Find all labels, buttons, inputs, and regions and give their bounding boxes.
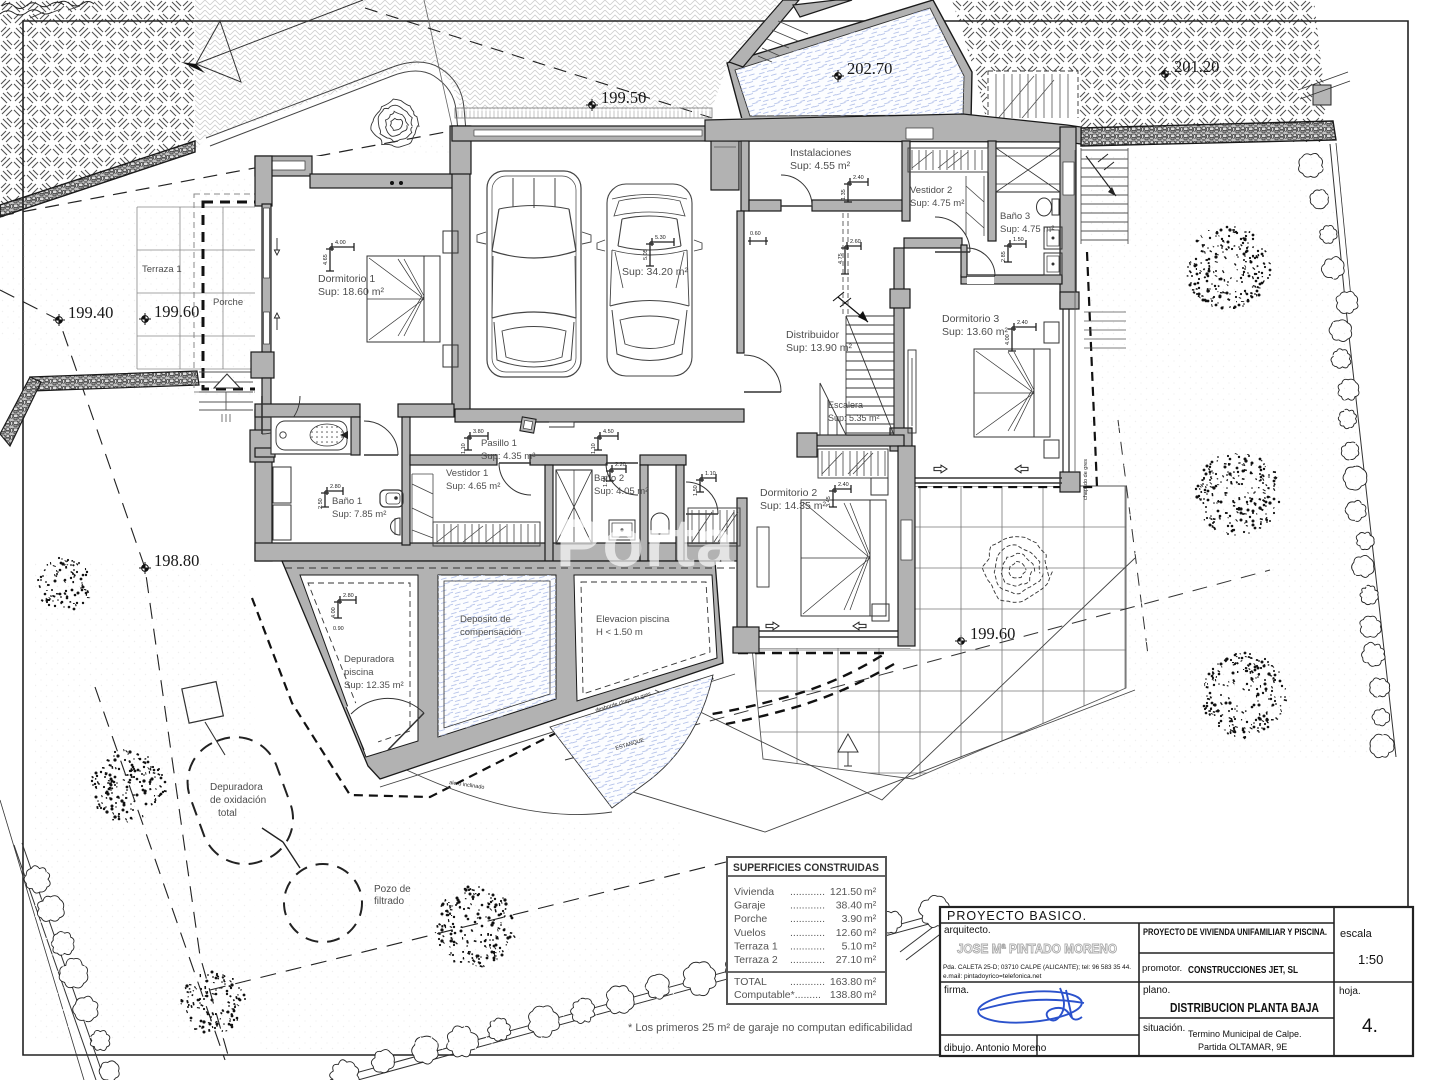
svg-text:202.70: 202.70	[847, 59, 892, 78]
svg-text:............: ............	[790, 886, 825, 898]
svg-text:Depuradora: Depuradora	[210, 782, 263, 793]
svg-text:5.10: 5.10	[842, 940, 863, 952]
svg-text:............: ............	[790, 940, 825, 952]
svg-text:Baño 3: Baño 3	[1000, 211, 1030, 222]
svg-text:38.40: 38.40	[836, 900, 862, 912]
svg-text:Sup: 4.55 m²: Sup: 4.55 m²	[790, 160, 851, 172]
svg-text:4.: 4.	[1362, 1016, 1378, 1037]
svg-text:m²: m²	[864, 976, 877, 988]
svg-text:piscina: piscina	[344, 667, 374, 678]
svg-text:Porche: Porche	[734, 913, 767, 925]
svg-text:163.80: 163.80	[830, 976, 862, 988]
svg-text:4.50: 4.50	[603, 429, 614, 435]
svg-text:1.10: 1.10	[591, 443, 597, 454]
svg-text:Sup: 13.90 m²: Sup: 13.90 m²	[786, 342, 852, 354]
svg-text:total: total	[218, 808, 237, 819]
svg-text:2.40: 2.40	[838, 482, 849, 488]
svg-text:m²: m²	[864, 954, 877, 966]
svg-text:............: ............	[790, 927, 825, 939]
svg-text:1.50: 1.50	[603, 476, 609, 487]
svg-text:Pasillo 1: Pasillo 1	[481, 438, 517, 449]
svg-text:5.30: 5.30	[655, 235, 666, 241]
svg-text:1:50: 1:50	[1358, 952, 1383, 967]
svg-text:3.90: 3.90	[842, 913, 863, 925]
svg-text:Sup: 5.35 m²: Sup: 5.35 m²	[828, 413, 880, 423]
svg-text:Deposito de: Deposito de	[460, 614, 511, 625]
svg-text:m²: m²	[864, 886, 877, 898]
svg-text:4.00: 4.00	[335, 240, 346, 246]
svg-text:4.00: 4.00	[331, 607, 337, 618]
svg-text:1.35: 1.35	[841, 189, 847, 200]
svg-text:Sup: 18.60 m²: Sup: 18.60 m²	[318, 286, 384, 298]
svg-text:............: ............	[790, 913, 825, 925]
svg-text:Depuradora: Depuradora	[344, 654, 395, 665]
svg-text:3.80: 3.80	[473, 429, 484, 435]
svg-text:filtrado: filtrado	[374, 896, 404, 907]
svg-text:Baño 1: Baño 1	[332, 496, 362, 507]
svg-text:199.60: 199.60	[154, 302, 199, 321]
svg-text:Vestidor 2: Vestidor 2	[910, 185, 952, 196]
svg-text:situación.: situación.	[1143, 1023, 1185, 1034]
svg-text:1.50: 1.50	[693, 485, 699, 496]
svg-text:Sup: 4.75 m²: Sup: 4.75 m²	[910, 198, 964, 209]
svg-text:Porta: Porta	[556, 505, 735, 581]
svg-text:199.40: 199.40	[68, 303, 113, 322]
svg-text:Vestidor 1: Vestidor 1	[446, 468, 488, 479]
svg-text:compensación: compensación	[460, 627, 521, 638]
svg-text:hoja.: hoja.	[1339, 986, 1361, 997]
svg-text:m²: m²	[864, 927, 877, 939]
svg-text:DISTRIBUCION PLANTA BAJA: DISTRIBUCION PLANTA BAJA	[1170, 1001, 1319, 1015]
svg-text:CONSTRUCCIONES JET, SL: CONSTRUCCIONES JET, SL	[1188, 965, 1298, 976]
svg-text:27.10: 27.10	[836, 954, 862, 966]
svg-text:Sup: 34.20 m²: Sup: 34.20 m²	[622, 266, 688, 278]
svg-text:Sup: 4.75 m²: Sup: 4.75 m²	[1000, 224, 1054, 235]
svg-text:1.10: 1.10	[705, 471, 716, 477]
svg-text:Baño 2: Baño 2	[594, 473, 624, 484]
svg-text:1.10: 1.10	[461, 443, 467, 454]
svg-text:e.mail: pintadoyrico=telefoni: e.mail: pintadoyrico=telefonica.net	[943, 973, 1042, 980]
svg-text:chapado de gres: chapado de gres	[1083, 459, 1089, 500]
svg-text:Partida OLTAMAR, 9E: Partida OLTAMAR, 9E	[1198, 1042, 1287, 1052]
svg-text:0.90: 0.90	[333, 626, 344, 632]
svg-text:2.60: 2.60	[850, 239, 861, 245]
svg-text:de oxidación: de oxidación	[210, 795, 266, 806]
svg-text:m²: m²	[864, 940, 877, 952]
svg-text:Escalera: Escalera	[828, 400, 863, 410]
svg-text:1.50: 1.50	[1013, 237, 1024, 243]
svg-text:JOSE Mª PINTADO MORENO: JOSE Mª PINTADO MORENO	[957, 942, 1117, 956]
svg-text:m²: m²	[864, 913, 877, 925]
svg-text:4.65: 4.65	[323, 254, 329, 265]
svg-text:Dormitorio 1: Dormitorio 1	[318, 273, 375, 285]
svg-text:Sup: 4.35 m²: Sup: 4.35 m²	[481, 451, 535, 462]
svg-text:2.80: 2.80	[343, 593, 354, 599]
svg-text:199.50: 199.50	[601, 88, 646, 107]
svg-text:plano.: plano.	[1143, 985, 1170, 996]
svg-text:............: ............	[790, 976, 825, 988]
svg-text:198.80: 198.80	[154, 551, 199, 570]
svg-text:138.80: 138.80	[830, 989, 862, 1001]
svg-text:* Los primeros 25 m² de garaje: * Los primeros 25 m² de garaje no comput…	[628, 1022, 912, 1034]
svg-text:2.40: 2.40	[853, 175, 864, 181]
svg-text:2.50: 2.50	[318, 498, 324, 509]
svg-text:PROYECTO BASICO.: PROYECTO BASICO.	[947, 909, 1087, 923]
svg-text:H < 1.50 m: H < 1.50 m	[596, 627, 643, 638]
svg-text:Terraza 1: Terraza 1	[142, 264, 182, 275]
svg-text:Sup: 13.60 m²: Sup: 13.60 m²	[942, 326, 1008, 338]
svg-text:Pozo de: Pozo de	[374, 884, 411, 895]
svg-text:Sup: 7.85 m²: Sup: 7.85 m²	[332, 509, 386, 520]
svg-text:12.60: 12.60	[836, 927, 862, 939]
svg-text:Terraza 2: Terraza 2	[734, 954, 778, 966]
svg-text:PROYECTO DE VIVIENDA UNIFAMILI: PROYECTO DE VIVIENDA UNIFAMILIAR Y PISCI…	[1143, 927, 1327, 937]
svg-text:Computable*.........: Computable*.........	[734, 989, 821, 1001]
svg-text:201.20: 201.20	[1174, 57, 1219, 76]
svg-text:3.45: 3.45	[826, 496, 832, 507]
svg-text:Distribuidor: Distribuidor	[786, 329, 840, 341]
svg-text:arquitecto.: arquitecto.	[944, 925, 991, 936]
svg-text:Porche: Porche	[213, 297, 243, 308]
svg-text:Pda. CALETA 25-D; 03710 CALPE: Pda. CALETA 25-D; 03710 CALPE (ALICANTE)…	[943, 964, 1131, 971]
svg-text:5.05: 5.05	[643, 249, 649, 260]
svg-text:Sup: 12.35 m²: Sup: 12.35 m²	[344, 680, 404, 691]
svg-text:4.00: 4.00	[1005, 334, 1011, 345]
svg-text:0.60: 0.60	[750, 231, 761, 237]
svg-text:dibujo. Antonio Moreno: dibujo. Antonio Moreno	[944, 1043, 1047, 1054]
svg-text:Garaje: Garaje	[734, 900, 766, 912]
svg-text:4.75: 4.75	[838, 253, 844, 264]
svg-text:2.40: 2.40	[1017, 320, 1028, 326]
svg-text:Vuelos: Vuelos	[734, 927, 766, 939]
svg-text:2.20: 2.20	[615, 462, 626, 468]
svg-text:Termino Municipal de Calpe.: Termino Municipal de Calpe.	[1188, 1029, 1302, 1039]
svg-text:121.50: 121.50	[830, 886, 862, 898]
svg-text:Instalaciones: Instalaciones	[790, 147, 851, 159]
svg-text:2.80: 2.80	[330, 484, 341, 490]
svg-text:Dormitorio 2: Dormitorio 2	[760, 487, 817, 499]
svg-text:2.85: 2.85	[1001, 251, 1007, 262]
svg-text:firma.: firma.	[944, 985, 969, 996]
svg-text:Vivienda: Vivienda	[734, 886, 774, 898]
svg-text:............: ............	[790, 954, 825, 966]
svg-text:promotor.: promotor.	[1142, 963, 1182, 974]
svg-text:............: ............	[790, 900, 825, 912]
svg-text:TOTAL: TOTAL	[734, 976, 767, 988]
svg-text:m²: m²	[864, 900, 877, 912]
svg-text:SUPERFICIES CONSTRUIDAS: SUPERFICIES CONSTRUIDAS	[733, 862, 879, 874]
svg-text:Sup: 14.35 m²: Sup: 14.35 m²	[760, 500, 826, 512]
svg-text:escala: escala	[1340, 928, 1373, 940]
svg-text:Dormitorio 3: Dormitorio 3	[942, 313, 999, 325]
svg-text:Terraza 1: Terraza 1	[734, 940, 778, 952]
svg-text:Elevacion piscina: Elevacion piscina	[596, 614, 670, 625]
svg-text:Sup: 4.65 m²: Sup: 4.65 m²	[446, 481, 500, 492]
svg-text:m²: m²	[864, 989, 877, 1001]
